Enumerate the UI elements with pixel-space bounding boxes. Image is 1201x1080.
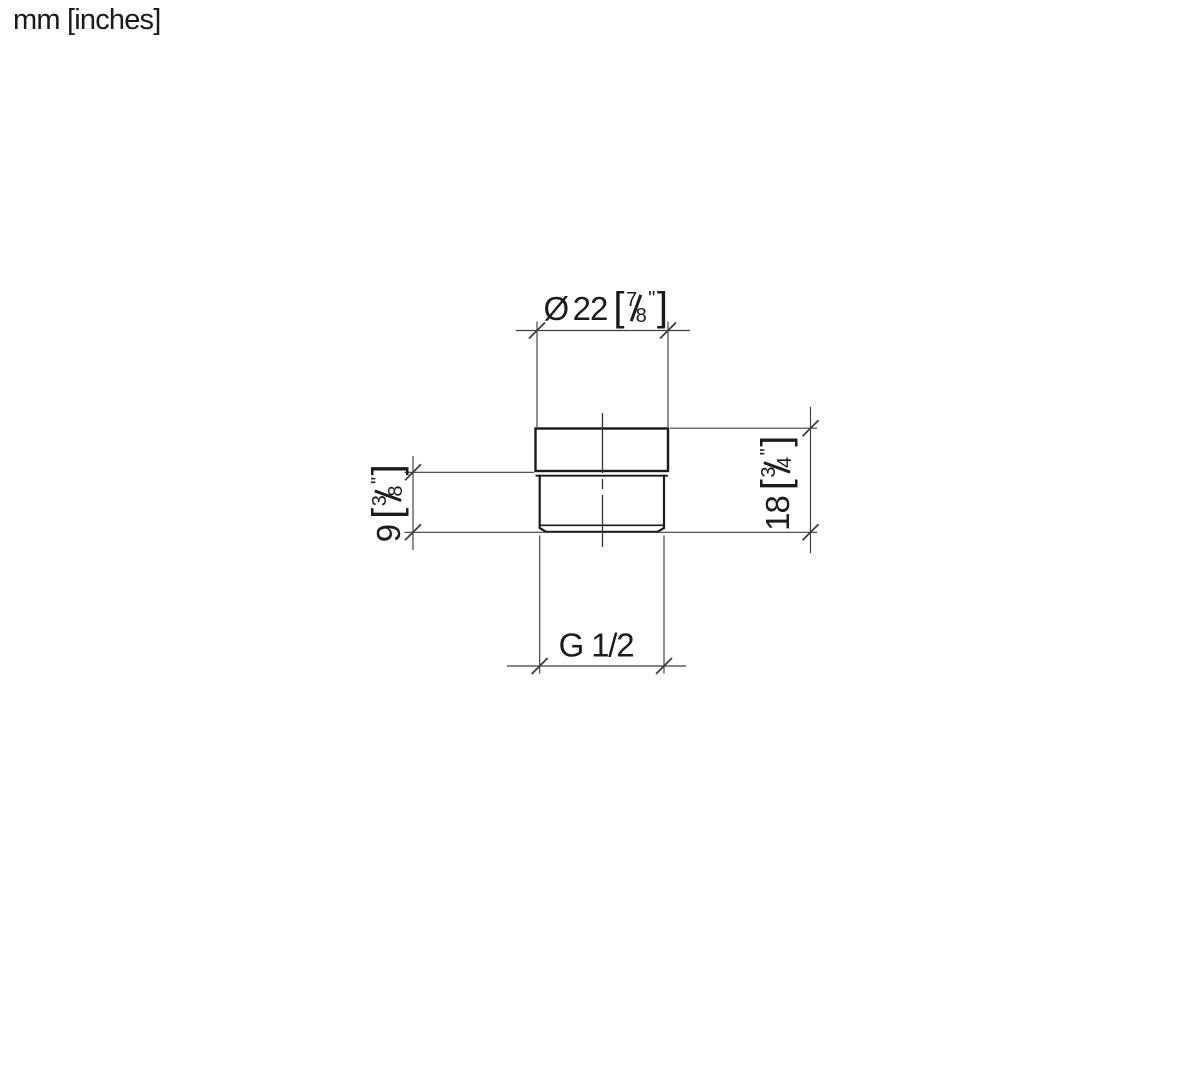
thread-designation: G 1/2: [559, 629, 634, 662]
bracket-close: ]: [656, 287, 669, 327]
lower-height-inch-fraction: 3 8 ": [374, 477, 402, 506]
diameter-inch-fraction: 7 8 ": [626, 294, 655, 322]
bracket-close: ]: [367, 464, 407, 477]
drawing-page: mm [inches]: [0, 0, 1201, 1080]
part-outline: [536, 429, 669, 532]
inch-mark: ": [369, 477, 389, 484]
bracket-close: ]: [756, 435, 796, 448]
thread-dim-label: G 1/2: [559, 629, 634, 662]
fraction-denominator: 8: [386, 486, 406, 497]
fraction-denominator: 8: [636, 306, 647, 326]
total-height-mm-value: 18: [761, 496, 794, 531]
bracket-open: [: [612, 287, 625, 327]
diameter-mm-value: 22: [573, 292, 608, 325]
lower-height-dim-label: 9 [ 3 8 " ]: [368, 464, 408, 542]
total-height-dim-label: 18 [ 3 4 " ]: [757, 435, 797, 531]
lower-height-mm-value: 9: [372, 525, 405, 542]
bracket-open: [: [756, 479, 796, 492]
diameter-symbol-icon: Ø: [544, 292, 569, 325]
bracket-open: [: [367, 507, 407, 520]
inch-mark: ": [648, 289, 655, 309]
part-upper-body: [536, 429, 669, 472]
diameter-dimension-lines: [516, 322, 690, 428]
fraction-denominator: 4: [775, 457, 795, 468]
lower-height-dimension-lines: [405, 456, 535, 550]
inch-mark: ": [758, 449, 778, 456]
total-height-inch-fraction: 3 4 ": [763, 449, 791, 478]
diameter-dim-label: Ø 22 [ 7 8 " ]: [544, 288, 669, 328]
technical-drawing-canvas: [0, 0, 1201, 1080]
